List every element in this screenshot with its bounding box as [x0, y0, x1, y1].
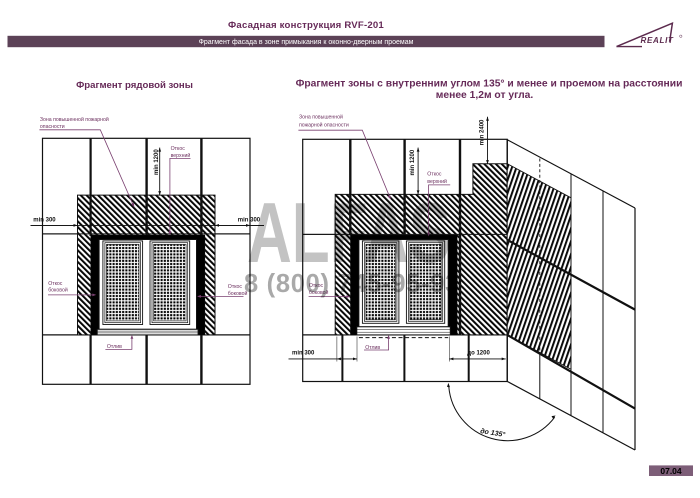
svg-text:07.04: 07.04: [660, 466, 682, 476]
svg-text:Фасадная конструкция RVF-201: Фасадная конструкция RVF-201: [228, 20, 384, 31]
svg-text:верхний: верхний: [427, 178, 447, 185]
svg-text:min 300: min 300: [33, 218, 56, 224]
svg-text:min 300: min 300: [292, 351, 315, 357]
svg-text:менее 1,2м от угла.: менее 1,2м от угла.: [436, 90, 534, 101]
svg-text:Откос: Откос: [48, 281, 63, 287]
svg-text:min 2400: min 2400: [480, 119, 486, 145]
svg-text:верхний: верхний: [171, 152, 191, 159]
svg-text:Откос: Откос: [427, 171, 442, 177]
svg-text:REALIT: REALIT: [641, 36, 675, 45]
svg-text:8 (800) 745-95-93: 8 (800) 745-95-93: [244, 270, 460, 298]
svg-text:ALFAS: ALFAS: [247, 185, 450, 280]
svg-text:Зона повышенной: Зона повышенной: [299, 114, 343, 121]
svg-text:Зона повышенной пожарной: Зона повышенной пожарной: [40, 116, 109, 123]
svg-text:Фрагмент рядовой зоны: Фрагмент рядовой зоны: [76, 80, 193, 91]
svg-text:Откос: Откос: [171, 146, 186, 152]
svg-text:min 1200: min 1200: [410, 149, 416, 175]
svg-text:Фрагмент зоны с внутренним угл: Фрагмент зоны с внутренним углом 135° и …: [296, 79, 683, 90]
svg-text:Откос: Откос: [228, 284, 243, 290]
svg-text:боковой: боковой: [48, 287, 68, 294]
svg-text:min 1200: min 1200: [154, 149, 160, 175]
svg-text:Фрагмент фасада в зоне примыка: Фрагмент фасада в зоне примыкания к окон…: [199, 39, 414, 46]
svg-text:пожарной опасности: пожарной опасности: [299, 122, 349, 129]
svg-text:опасности: опасности: [40, 124, 65, 130]
svg-text:до 1200: до 1200: [467, 351, 490, 357]
